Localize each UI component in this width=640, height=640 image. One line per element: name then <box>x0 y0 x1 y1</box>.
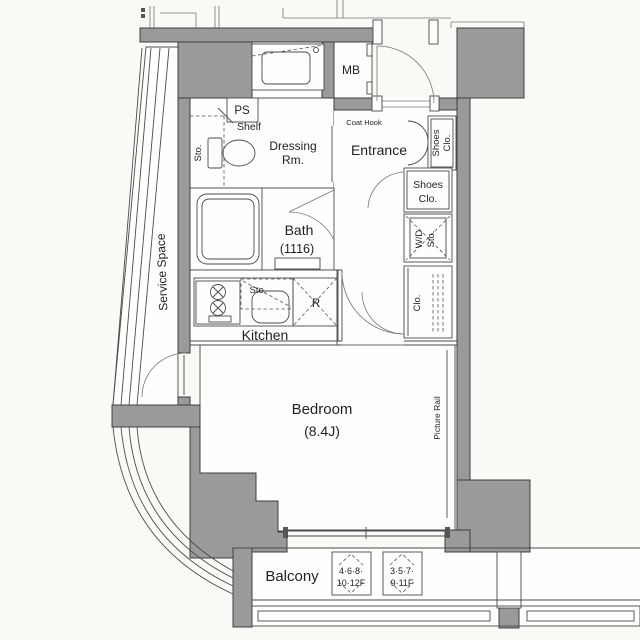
meter-box-label: MB <box>342 63 360 77</box>
wall-service-band <box>112 405 200 427</box>
hatch-2-floors-1: 3·5·7· <box>390 566 414 576</box>
shoes-closet-lower-label-1: Shoes <box>413 179 443 191</box>
wall-top-band <box>140 28 374 42</box>
shoes-closet-lower-label-2: Clo. <box>419 193 438 205</box>
shoes-closet-upper-label-2: Clo. <box>442 135 453 152</box>
dressing-storage-label: Sto. <box>193 145 204 162</box>
toilet-bowl <box>223 140 255 166</box>
floor-plan-svg: PS Shelf Sto. Dressing Rm. MB Coat Hook … <box>0 0 640 640</box>
closet: Clo. <box>404 266 452 338</box>
coat-hook-label: Coat Hook <box>346 118 382 127</box>
bedroom-size-label: (8.4J) <box>304 423 340 439</box>
entrance-label: Entrance <box>351 142 407 158</box>
floor-plan: PS Shelf Sto. Dressing Rm. MB Coat Hook … <box>0 0 640 640</box>
refrigerator-label: R <box>312 298 320 310</box>
wall-balcony-left <box>233 548 252 627</box>
balcony-floor <box>252 548 640 626</box>
wd-storage-label-1: W/D <box>414 230 425 249</box>
balcony-hatch-2: 3·5·7· 9·11F <box>383 552 422 595</box>
wall-service-upper <box>178 98 190 353</box>
entrance-jamb-right <box>430 96 439 111</box>
wd-storage-label-2: Sto. <box>426 231 437 248</box>
closet-label: Clo. <box>412 295 423 312</box>
washer-dryer-storage: W/D Sto. <box>404 214 452 262</box>
hatch-1-floors-1: 4·6·8· <box>339 566 363 576</box>
wall-right <box>457 98 470 532</box>
picture-rail-label: Picture Rail <box>432 396 442 440</box>
shoes-closet-upper-label-1: Shoes <box>431 129 442 156</box>
bath-size-label: (1116) <box>280 242 314 256</box>
bedroom-label: Bedroom <box>292 401 353 418</box>
dressing-room-label-1: Dressing <box>269 139 316 153</box>
wall-balcony-divider-foot <box>499 608 519 628</box>
kitchen-storage-label: Sto. <box>250 285 267 296</box>
bath-label: Bath <box>285 222 314 238</box>
toilet-tank <box>208 138 222 168</box>
pipe-space-label: PS <box>234 105 250 117</box>
dressing-room-label-2: Rm. <box>282 153 304 167</box>
service-space-label: Service Space <box>154 233 171 311</box>
wall-top-left-block <box>178 42 252 98</box>
hatch-2-floors-2: 9·11F <box>391 578 414 588</box>
shelf-label: Shelf <box>237 121 261 133</box>
hatch-1-floors-2: 10·12F <box>337 578 366 588</box>
wall-pillar-top-right <box>457 28 524 98</box>
balcony-hatch-1: 4·6·8· 10·12F <box>332 552 371 595</box>
wall-entrance-left <box>334 98 374 110</box>
balcony-label: Balcony <box>265 568 319 585</box>
